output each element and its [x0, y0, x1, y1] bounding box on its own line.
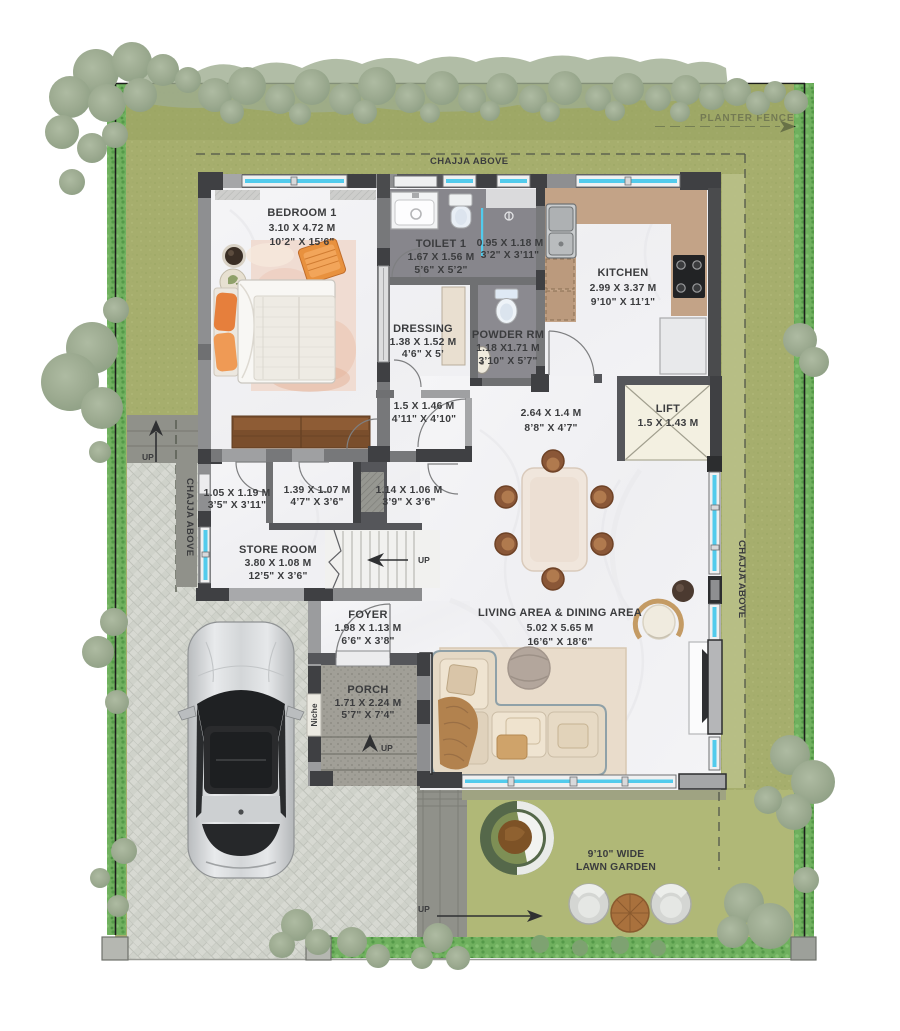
svg-text:3.10 X 4.72 M: 3.10 X 4.72 M: [269, 223, 336, 234]
svg-text:4’11" X 4’10": 4’11" X 4’10": [392, 414, 456, 425]
svg-text:5.02 X 5.65 M: 5.02 X 5.65 M: [527, 623, 594, 634]
svg-text:UP: UP: [381, 743, 393, 753]
svg-text:3’2" X 3’11": 3’2" X 3’11": [481, 250, 540, 261]
svg-text:1.5 X 1.46 M: 1.5 X 1.46 M: [394, 401, 455, 412]
svg-text:4’6" X 5’: 4’6" X 5’: [402, 349, 444, 360]
svg-text:2.64 X 1.4 M: 2.64 X 1.4 M: [521, 408, 582, 419]
svg-text:5’6" X 5’2": 5’6" X 5’2": [414, 265, 467, 276]
svg-text:STORE ROOM: STORE ROOM: [239, 544, 317, 556]
svg-text:KITCHEN: KITCHEN: [598, 267, 649, 279]
svg-text:BEDROOM 1: BEDROOM 1: [267, 207, 336, 219]
svg-text:1.98 X 1.13 M: 1.98 X 1.13 M: [335, 623, 402, 634]
svg-text:UP: UP: [142, 452, 154, 462]
svg-text:0.95 X 1.18 M: 0.95 X 1.18 M: [477, 238, 544, 249]
svg-text:9’10" X 11’1": 9’10" X 11’1": [591, 297, 655, 308]
svg-text:POWDER RM: POWDER RM: [472, 329, 544, 341]
svg-text:1.67 X 1.56 M: 1.67 X 1.56 M: [408, 252, 475, 263]
svg-text:FOYER: FOYER: [348, 609, 387, 621]
svg-text:UP: UP: [418, 555, 430, 565]
svg-text:3.80 X 1.08 M: 3.80 X 1.08 M: [245, 558, 312, 569]
svg-text:9’10" WIDE: 9’10" WIDE: [588, 849, 645, 860]
svg-text:CHAJJA ABOVE: CHAJJA ABOVE: [736, 540, 747, 619]
svg-text:8’8" X 4’7": 8’8" X 4’7": [524, 423, 577, 434]
svg-text:1.39 X 1.07 M: 1.39 X 1.07 M: [284, 485, 351, 496]
svg-text:1.71 X 2.24 M: 1.71 X 2.24 M: [335, 698, 402, 709]
svg-text:12’5" X 3’6": 12’5" X 3’6": [248, 571, 307, 582]
svg-text:1.18 X1.71 M: 1.18 X1.71 M: [476, 343, 540, 354]
svg-text:1.05 X 1.19 M: 1.05 X 1.19 M: [204, 488, 271, 499]
svg-text:3’9" X 3’6": 3’9" X 3’6": [382, 497, 435, 508]
svg-text:4’7" X 3’6": 4’7" X 3’6": [290, 497, 343, 508]
svg-text:LIVING AREA & DINING AREA: LIVING AREA & DINING AREA: [478, 607, 642, 619]
svg-text:Niche: Niche: [309, 703, 319, 726]
svg-text:16’6" X 18’6": 16’6" X 18’6": [527, 637, 592, 648]
svg-text:1.5 X 1.43 M: 1.5 X 1.43 M: [638, 418, 699, 429]
svg-text:2.99 X 3.37 M: 2.99 X 3.37 M: [590, 283, 657, 294]
svg-text:CHAJJA ABOVE: CHAJJA ABOVE: [430, 156, 509, 167]
svg-text:CHAJJA ABOVE: CHAJJA ABOVE: [184, 478, 195, 557]
svg-text:PORCH: PORCH: [347, 684, 388, 696]
svg-text:1.38 X 1.52 M: 1.38 X 1.52 M: [390, 337, 457, 348]
svg-text:6’6" X 3’8": 6’6" X 3’8": [341, 636, 394, 647]
svg-text:DRESSING: DRESSING: [393, 323, 453, 335]
svg-text:3’10" X 5’7": 3’10" X 5’7": [478, 356, 537, 367]
svg-text:1.14 X 1.06 M: 1.14 X 1.06 M: [376, 485, 443, 496]
svg-text:3’5" X 3’11": 3’5" X 3’11": [208, 500, 267, 511]
svg-text:10’2" X 15’6": 10’2" X 15’6": [269, 237, 334, 248]
svg-text:5’7" X 7’4": 5’7" X 7’4": [341, 710, 394, 721]
svg-text:UP: UP: [418, 904, 430, 914]
svg-text:LIFT: LIFT: [656, 403, 680, 415]
svg-text:TOILET 1: TOILET 1: [416, 238, 466, 250]
svg-text:LAWN GARDEN: LAWN GARDEN: [576, 862, 656, 873]
